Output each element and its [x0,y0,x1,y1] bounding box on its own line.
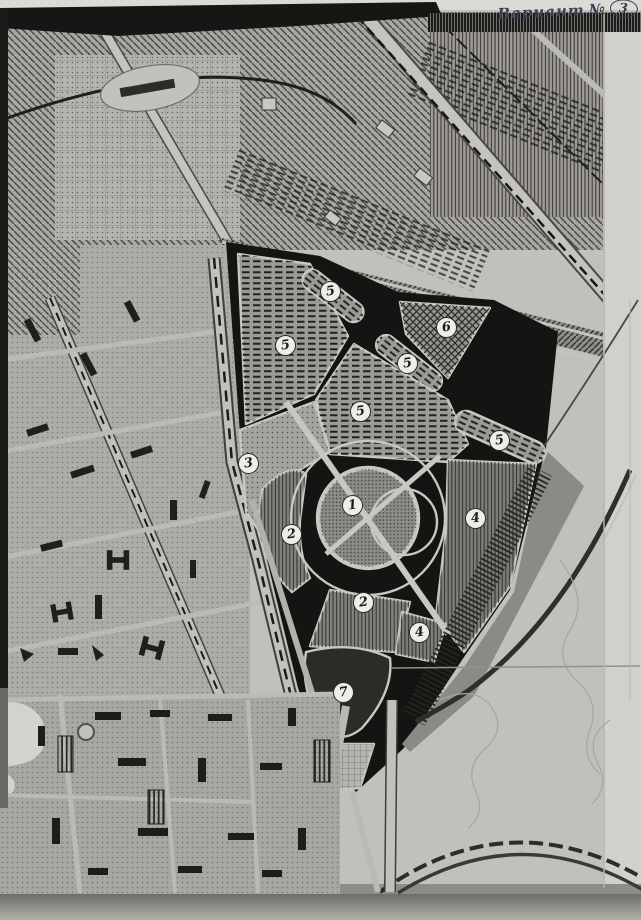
zone-marker-5: 5 [318,279,342,303]
zone-marker-5: 5 [348,399,372,423]
zone-marker-6: 6 [434,315,458,339]
annotation-word: Вариант [497,1,585,23]
zone-marker-1: 1 [340,493,364,517]
zone-marker-7: 7 [331,680,355,704]
zone-marker-4: 4 [407,620,431,644]
annotation-number-circled: 3 [609,0,638,18]
zone-markers-layer: 5655553142247 [0,0,641,920]
zone-marker-4: 4 [463,506,487,530]
scanned-map-page: Вариант № 3 5655553142247 [0,0,641,920]
zone-marker-2: 2 [351,590,375,614]
annotation-numero: № [588,0,606,19]
zone-marker-3: 3 [236,451,260,475]
zone-marker-5: 5 [395,351,419,375]
zone-marker-5: 5 [487,428,511,452]
zone-marker-5: 5 [273,333,297,357]
zone-marker-2: 2 [279,522,303,546]
